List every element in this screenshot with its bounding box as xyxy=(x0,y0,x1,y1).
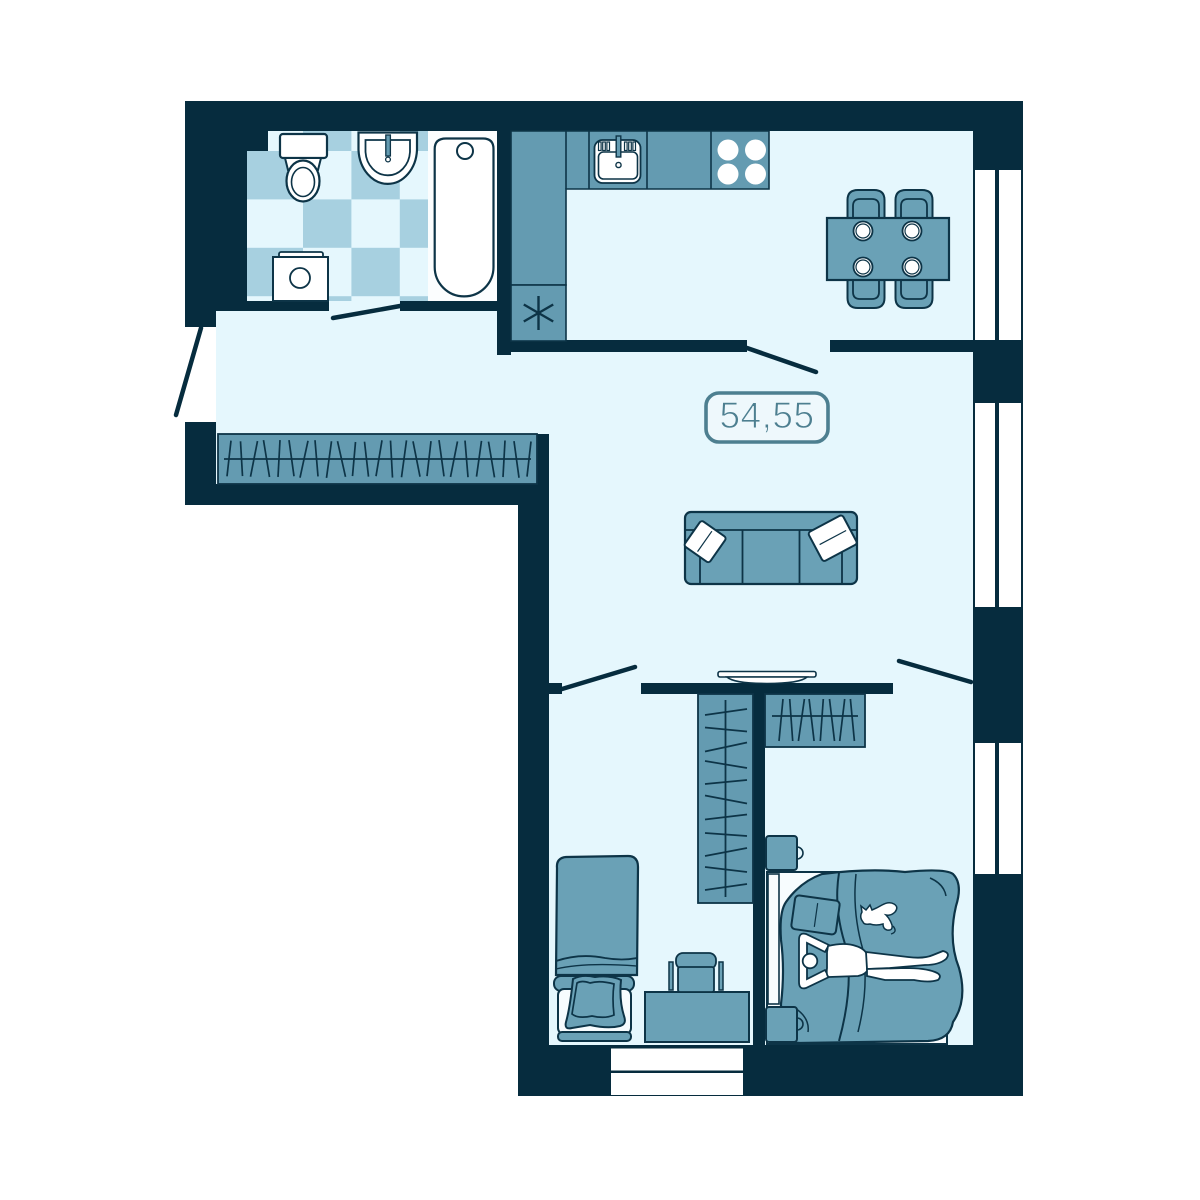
svg-text:54,55: 54,55 xyxy=(719,395,814,436)
